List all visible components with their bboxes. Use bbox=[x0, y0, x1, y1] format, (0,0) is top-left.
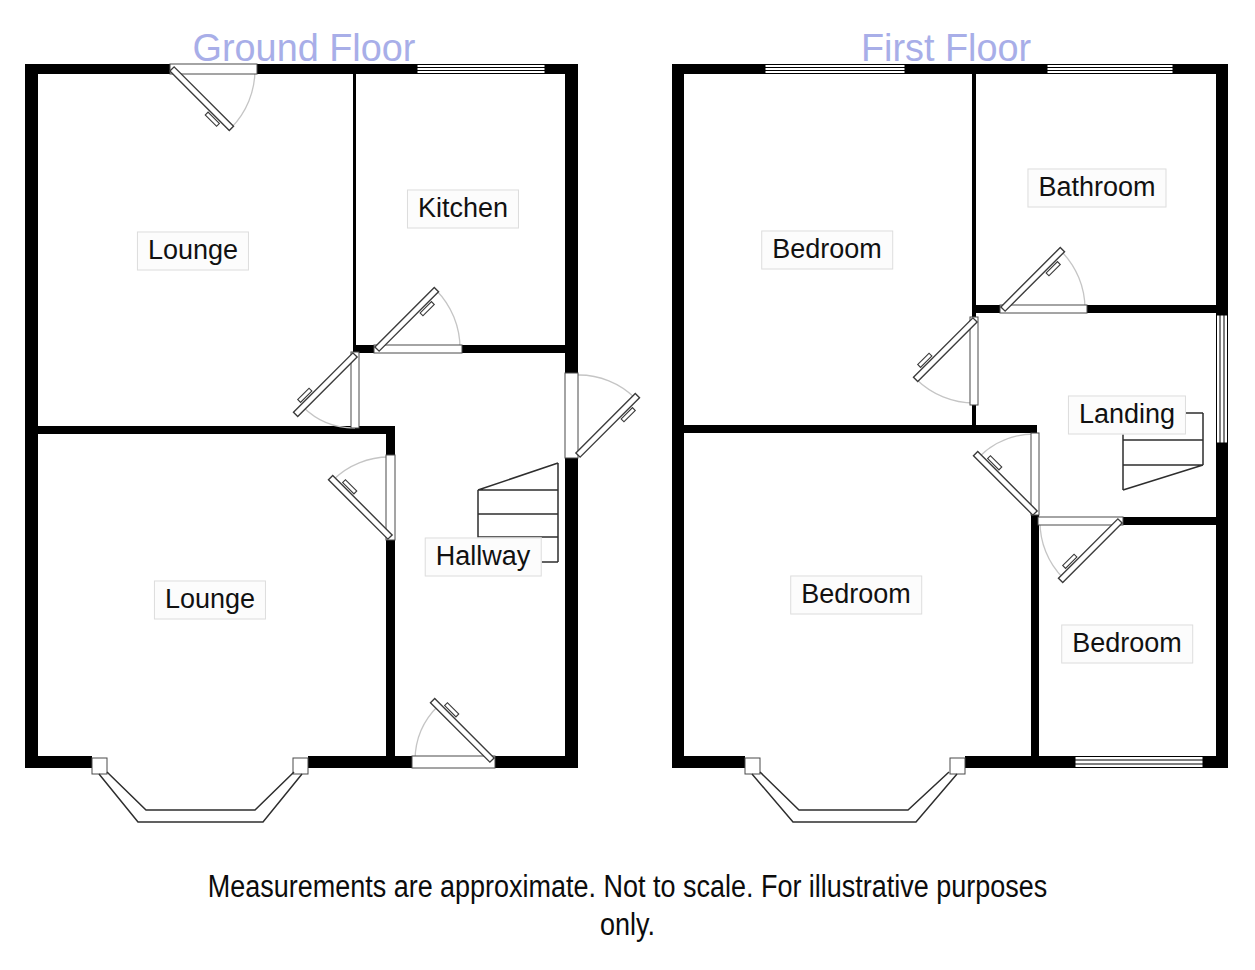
room-label-lounge-top: Lounge bbox=[137, 232, 249, 271]
bay-window bbox=[92, 758, 308, 822]
door bbox=[166, 64, 257, 135]
door bbox=[374, 287, 462, 355]
room-label-bedroom-bottom-left: Bedroom bbox=[790, 576, 922, 615]
window bbox=[1047, 65, 1173, 74]
window bbox=[1075, 757, 1203, 768]
door bbox=[1000, 247, 1087, 315]
door bbox=[973, 433, 1041, 515]
room-label-lounge-bottom: Lounge bbox=[154, 581, 266, 620]
first-floor-title: First Floor bbox=[861, 26, 1031, 70]
door bbox=[328, 455, 396, 540]
room-label-landing: Landing bbox=[1068, 396, 1186, 435]
room-label-bathroom: Bathroom bbox=[1027, 169, 1166, 208]
disclaimer-line-1: Measurements are approximate. Not to sca… bbox=[82, 868, 1174, 906]
door bbox=[909, 314, 978, 405]
door bbox=[565, 373, 644, 461]
interior-walls bbox=[25, 74, 565, 756]
room-label-bedroom-top: Bedroom bbox=[761, 231, 893, 270]
room-label-bedroom-bottom-right: Bedroom bbox=[1061, 625, 1193, 664]
room-label-kitchen: Kitchen bbox=[407, 190, 519, 229]
disclaimer-line-2: only. bbox=[82, 906, 1174, 944]
door bbox=[289, 349, 359, 428]
floorplan-page: Ground Floor First Floor Lounge Kitchen … bbox=[0, 0, 1255, 970]
window bbox=[417, 65, 545, 74]
exterior-walls bbox=[25, 64, 578, 768]
ground-floor-title: Ground Floor bbox=[193, 26, 416, 70]
room-label-hallway: Hallway bbox=[425, 538, 542, 577]
floorplan-drawing bbox=[0, 0, 1255, 970]
disclaimer-text: Measurements are approximate. Not to sca… bbox=[82, 868, 1174, 944]
floor-plan-ground bbox=[25, 64, 644, 822]
door bbox=[412, 694, 498, 768]
window bbox=[1217, 315, 1228, 443]
bay-window bbox=[745, 758, 965, 822]
door bbox=[1038, 515, 1123, 583]
